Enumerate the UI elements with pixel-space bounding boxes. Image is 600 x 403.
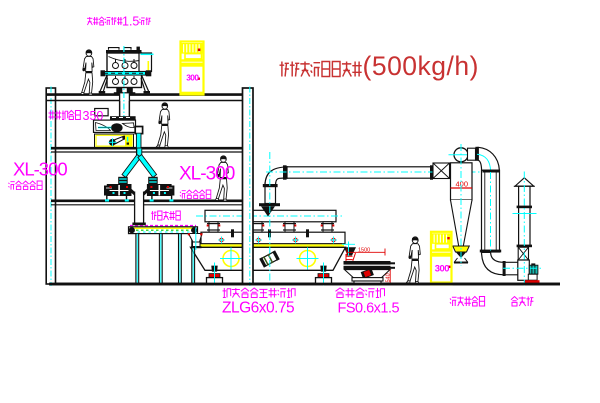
svg-text:FS0.6x1.5: FS0.6x1.5 [338, 301, 400, 317]
svg-text:300: 300 [435, 263, 449, 274]
svg-text:XL-300: XL-300 [179, 164, 235, 185]
svg-text:(500kg/h): (500kg/h) [363, 51, 479, 81]
svg-text:ZLG6x0.75: ZLG6x0.75 [222, 300, 294, 317]
svg-text:300: 300 [186, 72, 199, 82]
svg-text:350: 350 [83, 109, 104, 123]
svg-text:400: 400 [456, 179, 469, 188]
svg-text:1500: 1500 [358, 248, 370, 254]
svg-text:XL-300: XL-300 [13, 159, 67, 180]
svg-text:540: 540 [385, 273, 391, 282]
svg-text:1.5: 1.5 [122, 14, 139, 28]
